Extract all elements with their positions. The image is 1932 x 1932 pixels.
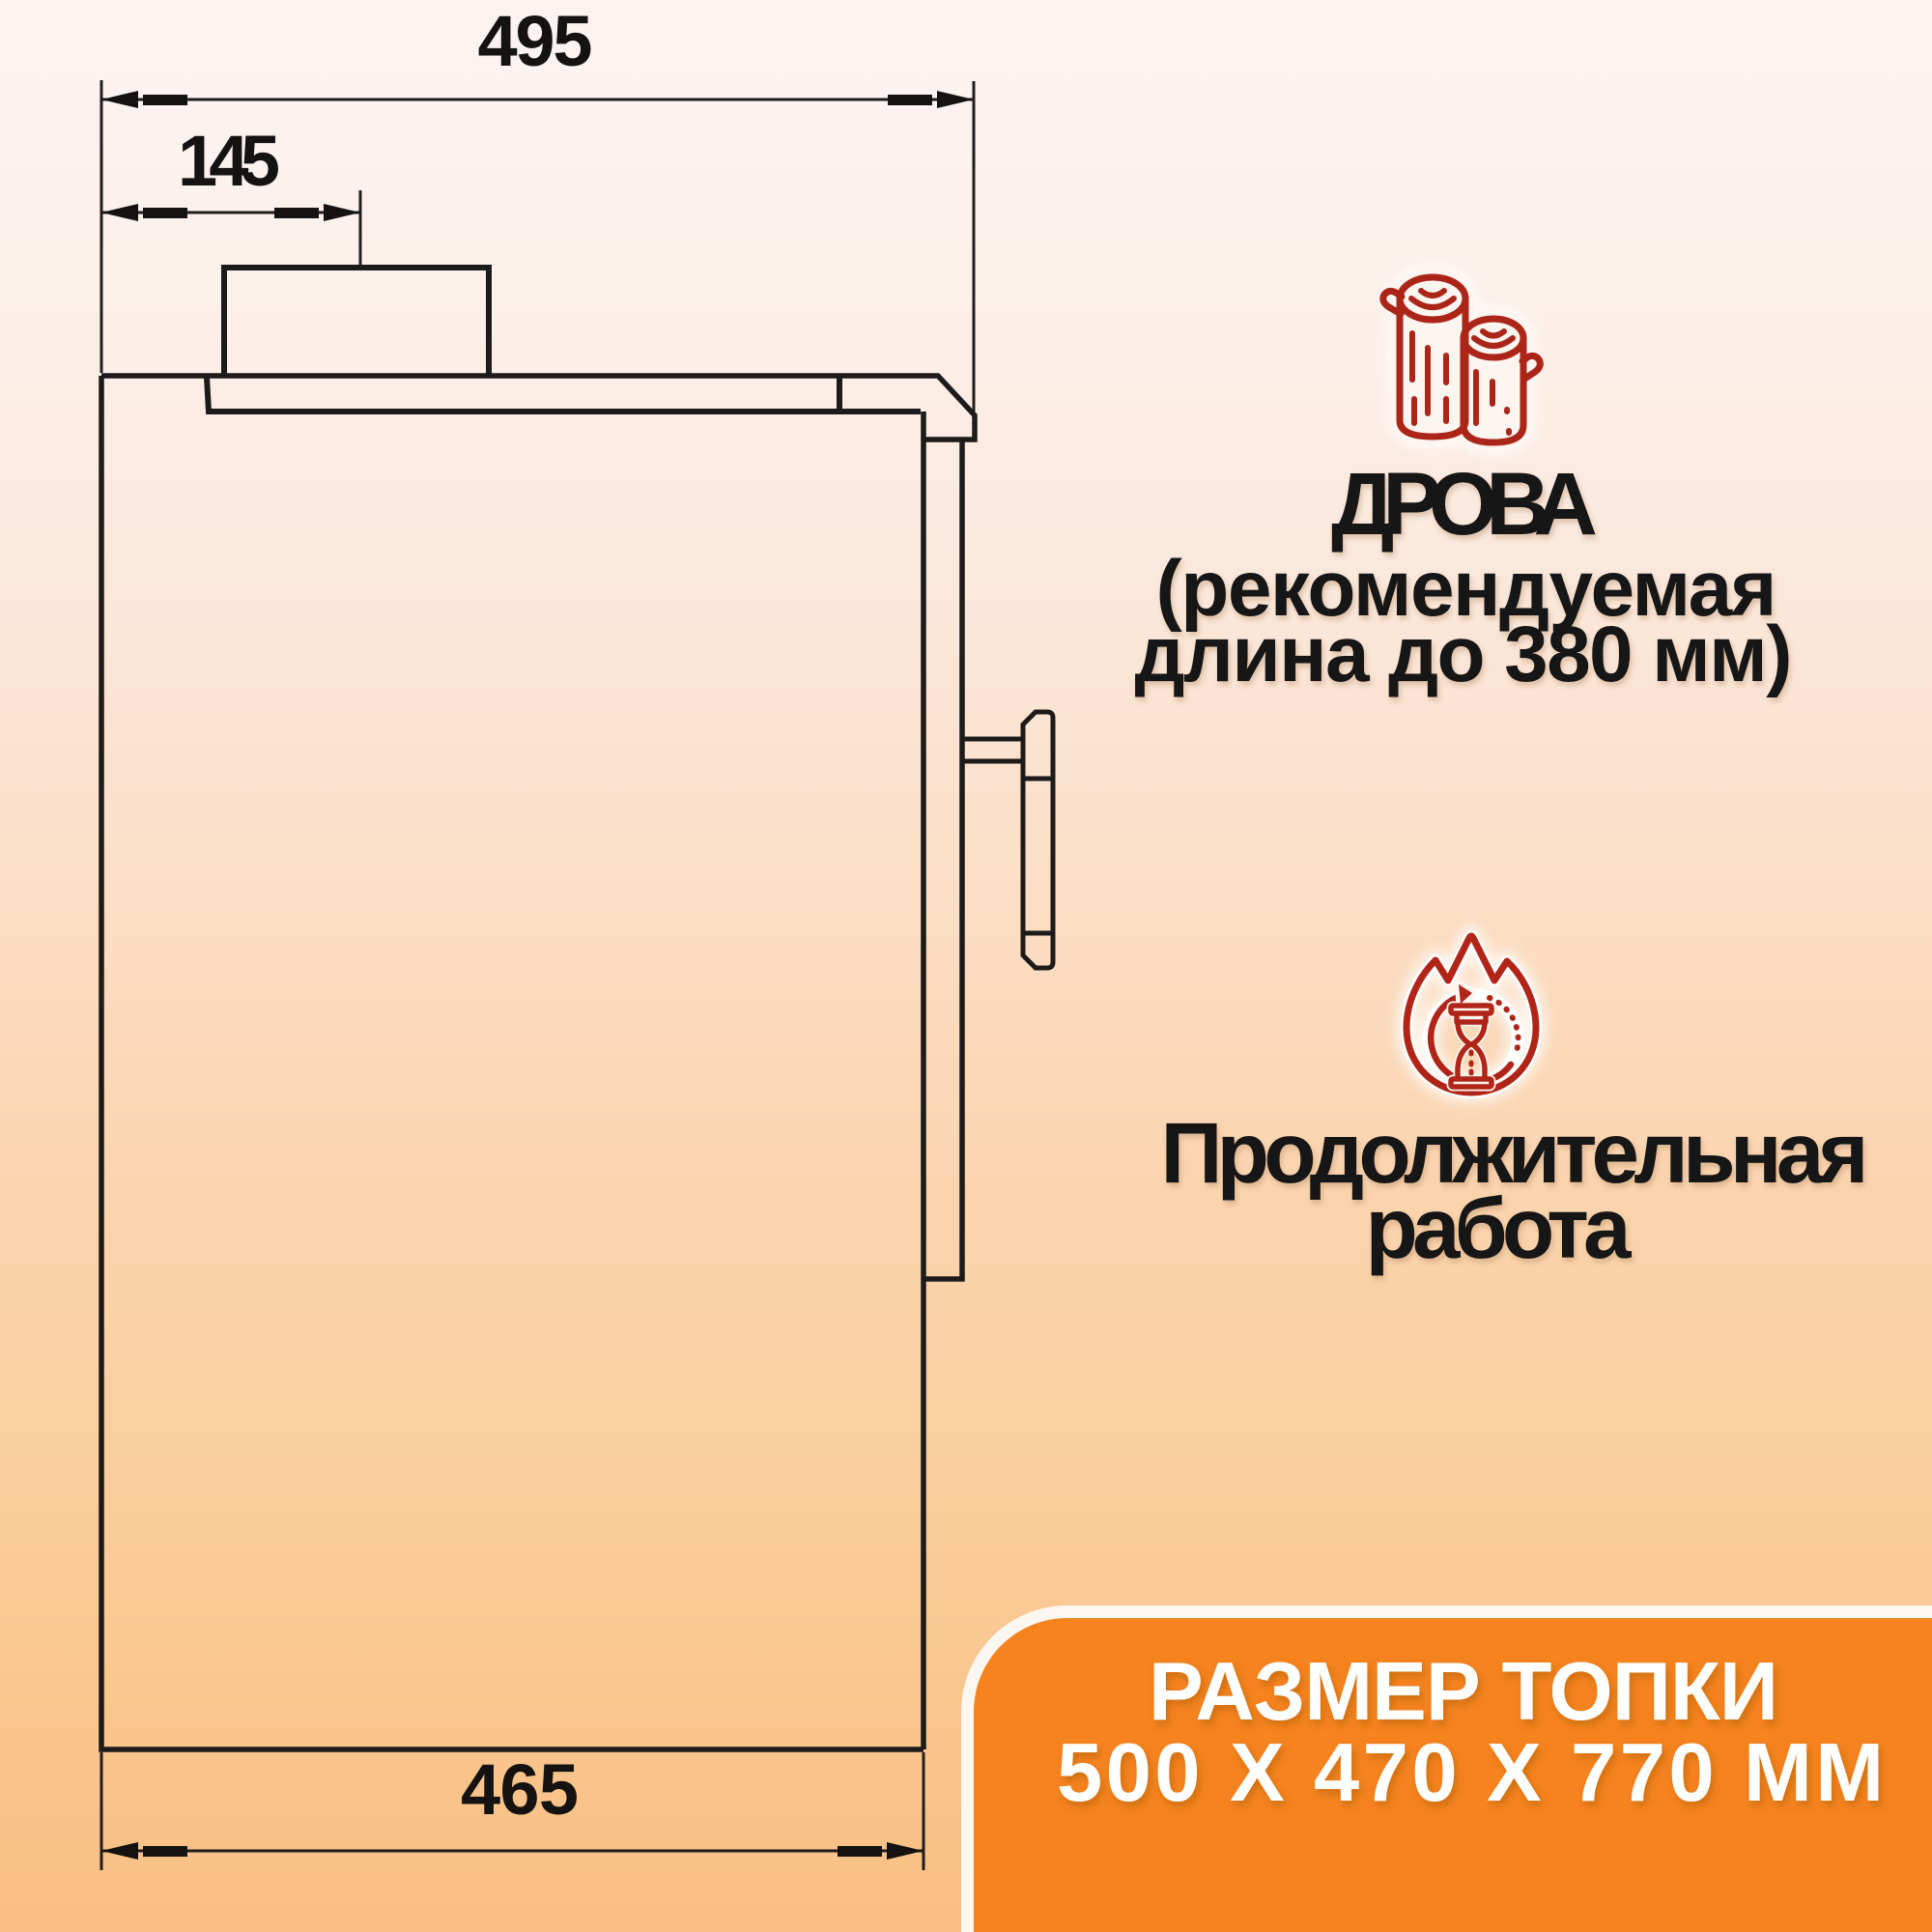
svg-text:длина до 380 мм): длина до 380 мм) [1135, 611, 1793, 698]
svg-text:495: 495 [478, 1, 593, 81]
svg-text:РАЗМЕР ТОПКИ: РАЗМЕР ТОПКИ [1149, 1646, 1778, 1738]
svg-text:465: 465 [461, 1749, 579, 1830]
svg-text:500 Х 470 Х 770 ММ: 500 Х 470 Х 770 ММ [1057, 1727, 1884, 1819]
svg-text:ДРОВА: ДРОВА [1331, 455, 1598, 554]
svg-text:145: 145 [178, 121, 280, 201]
svg-text:работа: работа [1366, 1179, 1634, 1276]
